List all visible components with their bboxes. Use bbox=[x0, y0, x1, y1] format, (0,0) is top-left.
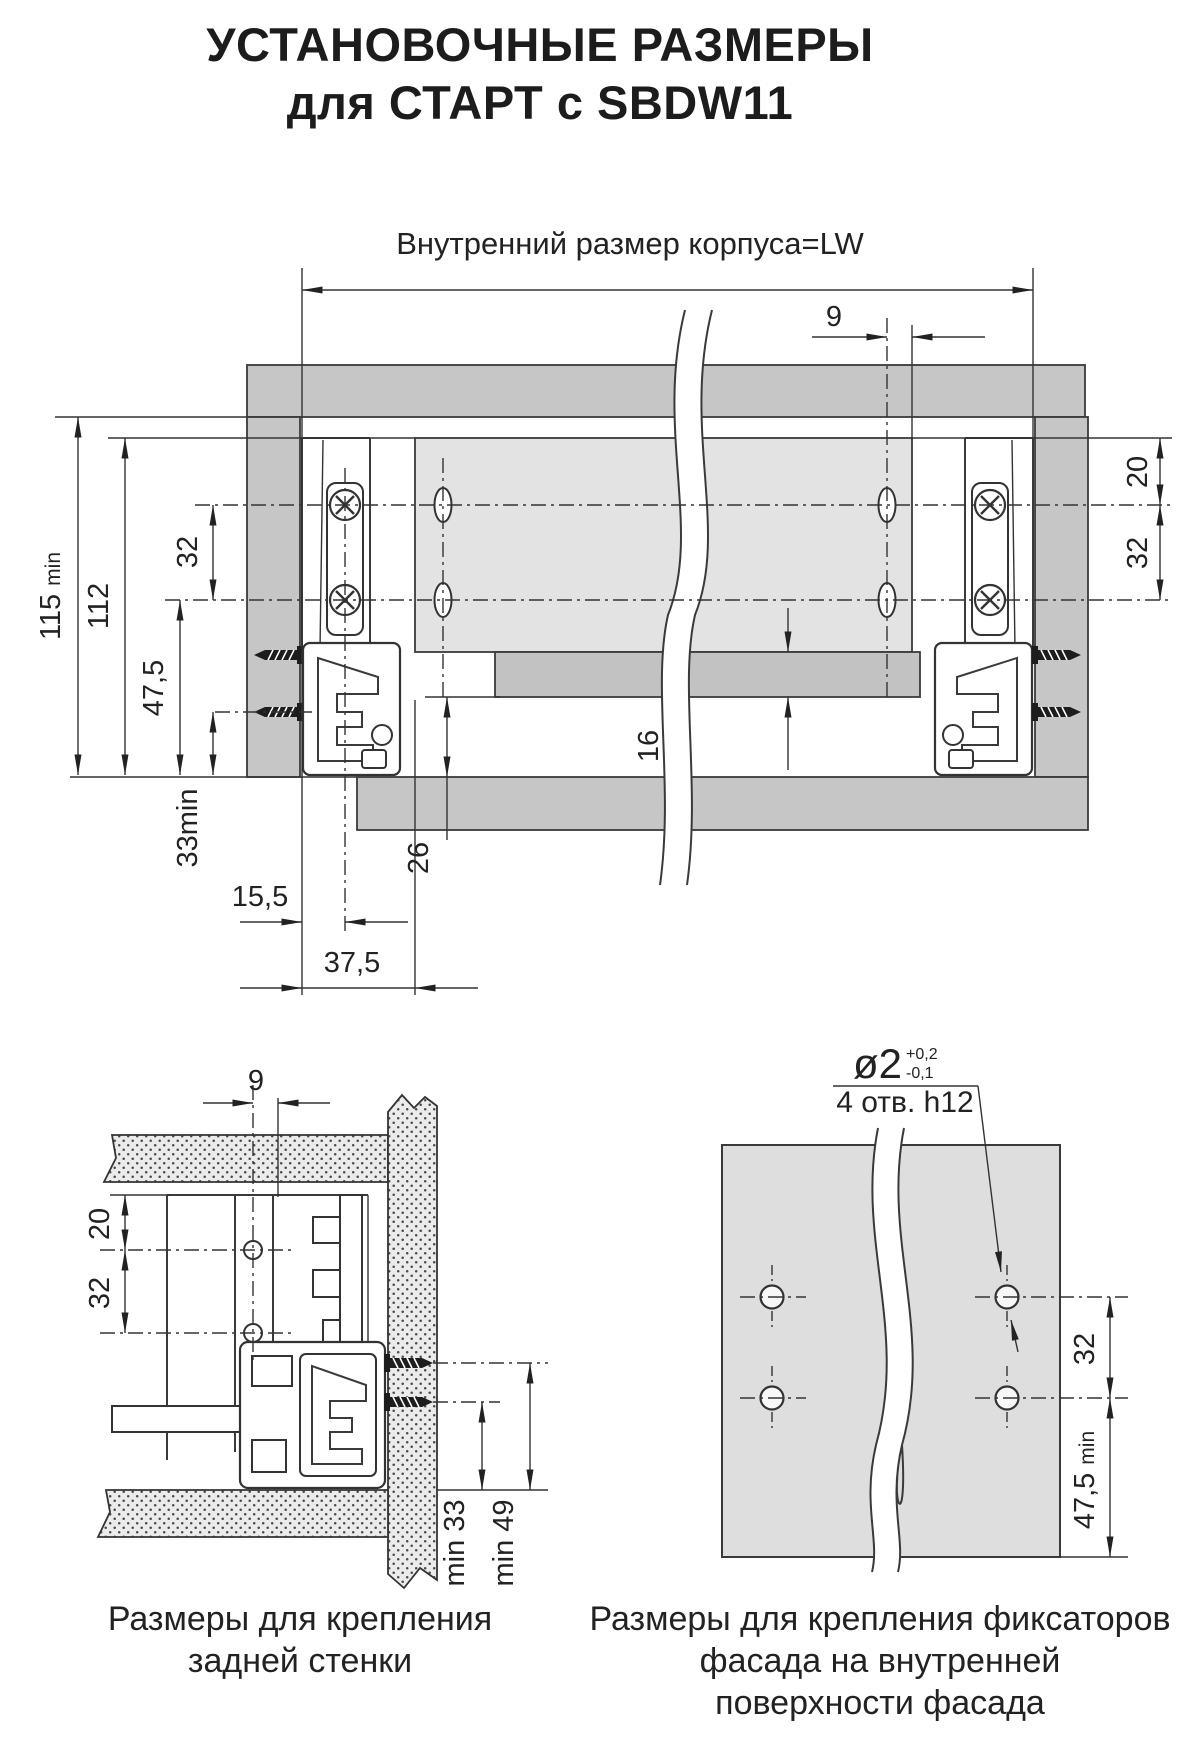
dim-37-5: 37,5 bbox=[240, 947, 478, 988]
facade-view: ø2 +0,2 -0,1 4 отв. h12 32 47,5min bbox=[722, 1040, 1128, 1572]
dim-112-label: 112 bbox=[83, 583, 115, 629]
caption-back-wall-line2: задней стенки bbox=[188, 1642, 412, 1680]
dim-9-back-label: 9 bbox=[248, 1065, 264, 1097]
dim-9-main: 9 bbox=[812, 301, 985, 337]
hatched-bottom-board bbox=[98, 1490, 388, 1537]
dim-9-back: 9 bbox=[203, 1065, 330, 1103]
dim-26-label: 26 bbox=[403, 842, 435, 874]
left-slide-rail bbox=[303, 643, 400, 775]
dim-20-right-label: 20 bbox=[1122, 456, 1154, 488]
cabinet-top-panel bbox=[247, 365, 1085, 417]
caption-facade-line2: фасада на внутренней bbox=[700, 1642, 1061, 1680]
drawer-back-panel bbox=[415, 438, 912, 652]
dim-47-5: 47,5 bbox=[138, 600, 180, 775]
drawer-back-structure bbox=[112, 1195, 385, 1488]
right-slide-rail bbox=[935, 643, 1032, 775]
dim-32-back: 32 bbox=[84, 1250, 125, 1333]
dim-33min: 33min bbox=[172, 712, 213, 868]
rail-mechanism bbox=[240, 1342, 385, 1488]
cabinet-right-side-panel bbox=[1035, 417, 1088, 777]
hole-note-label: 4 отв. h12 bbox=[836, 1086, 973, 1119]
dim-47-5-facade-label: 47,5min bbox=[1069, 1431, 1101, 1529]
dim-min49-label: min 49 bbox=[488, 1499, 520, 1586]
dim-32-left-label: 32 bbox=[172, 536, 204, 568]
dim-32-left: 32 bbox=[172, 505, 213, 600]
hole-dia-label: ø2 bbox=[853, 1040, 902, 1087]
right-runner-bracket bbox=[965, 438, 1033, 650]
dim-15-5-label: 15,5 bbox=[232, 881, 288, 913]
cabinet-left-side-panel bbox=[247, 417, 300, 777]
caption-facade: Размеры для крепления фиксаторов фасада … bbox=[580, 1598, 1180, 1724]
dim-115-label: 115min bbox=[35, 552, 67, 640]
dim-32-back-label: 32 bbox=[84, 1277, 116, 1309]
dim-16-label: 16 bbox=[633, 730, 665, 762]
dim-115: 115min bbox=[35, 417, 78, 775]
dim-33min-label: 33min bbox=[172, 789, 204, 868]
dim-min33: min 33 bbox=[439, 1402, 482, 1587]
dim-20-back-label: 20 bbox=[84, 1208, 116, 1240]
hole-tol-minus: -0,1 bbox=[906, 1065, 934, 1082]
dim-min33-label: min 33 bbox=[439, 1499, 471, 1586]
caption-back-wall: Размеры для крепления задней стенки bbox=[40, 1598, 560, 1682]
dim-47-5-facade: 47,5min bbox=[1069, 1398, 1110, 1557]
caption-facade-line3: поверхности фасада bbox=[715, 1684, 1045, 1722]
technical-drawing: Внутренний размер корпуса=LW 9 115min 11… bbox=[0, 0, 1200, 1760]
hatched-top-board bbox=[104, 1135, 388, 1182]
back-wall-view: 9 20 32 min 33 min 49 bbox=[84, 1065, 548, 1588]
cabinet-bottom-panel bbox=[357, 777, 1088, 830]
dim-20-back: 20 bbox=[84, 1195, 125, 1250]
dim-20-right: 20 bbox=[1122, 438, 1160, 505]
dim-9-main-label: 9 bbox=[826, 301, 842, 333]
left-runner-bracket bbox=[302, 438, 370, 650]
drawer-bottom-panel bbox=[495, 652, 920, 697]
hatched-back-wall-board bbox=[388, 1095, 437, 1588]
dim-112: 112 bbox=[83, 438, 125, 775]
dim-15-5: 15,5 bbox=[232, 881, 408, 922]
hole-tol-plus: +0,2 bbox=[906, 1046, 938, 1063]
dim-32-right-label: 32 bbox=[1122, 537, 1154, 569]
dim-32-right: 32 bbox=[1122, 505, 1160, 600]
dim-min49: min 49 bbox=[488, 1363, 530, 1587]
main-view: Внутренний размер корпуса=LW 9 115min 11… bbox=[35, 226, 1172, 995]
rail-roller bbox=[372, 725, 392, 745]
dim-lw-label: Внутренний размер корпуса=LW bbox=[396, 226, 864, 261]
page: УСТАНОВОЧНЫЕ РАЗМЕРЫ для СТАРТ с SBDW11 bbox=[0, 0, 1200, 1760]
caption-back-wall-line1: Размеры для крепления bbox=[108, 1600, 492, 1638]
dim-32-facade: 32 bbox=[1069, 1297, 1110, 1398]
dim-37-5-label: 37,5 bbox=[324, 947, 380, 979]
dim-lw: Внутренний размер корпуса=LW bbox=[302, 226, 1033, 290]
dim-47-5-label: 47,5 bbox=[138, 660, 170, 716]
dim-32-facade-label: 32 bbox=[1069, 1333, 1101, 1365]
caption-facade-line1: Размеры для крепления фиксаторов bbox=[589, 1600, 1170, 1638]
